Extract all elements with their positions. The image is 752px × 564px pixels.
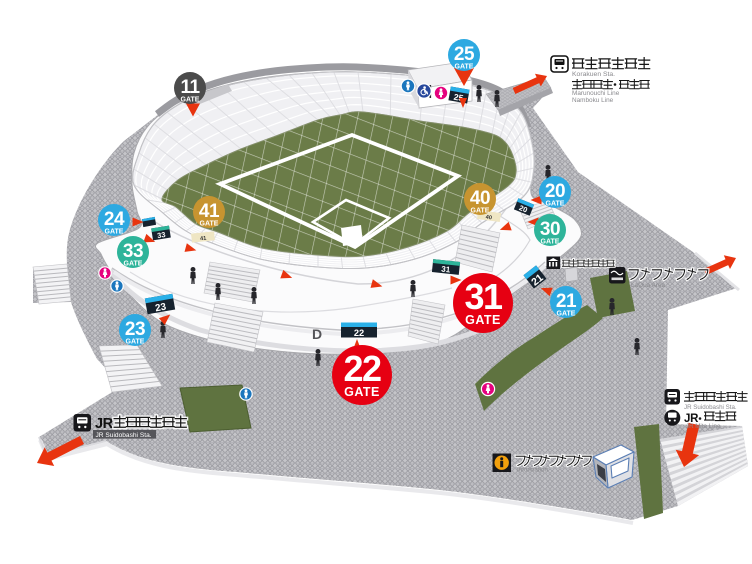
- svg-text:21: 21: [556, 291, 577, 312]
- svg-text:31: 31: [464, 276, 503, 317]
- svg-text:GATE: GATE: [126, 339, 145, 346]
- svg-text:GATE: GATE: [541, 239, 560, 246]
- svg-text:GATE: GATE: [124, 261, 143, 268]
- svg-text:GATE: GATE: [344, 385, 380, 399]
- svg-text:31: 31: [441, 265, 451, 275]
- svg-text:Marunouchi Line: Marunouchi Line: [572, 90, 620, 97]
- svg-text:30: 30: [540, 219, 560, 240]
- svg-text:40: 40: [485, 215, 492, 222]
- svg-text:33: 33: [123, 241, 143, 262]
- svg-text:JR Mita Line: JR Mita Line: [686, 423, 721, 430]
- svg-text:23: 23: [125, 319, 145, 340]
- svg-text:41: 41: [199, 201, 220, 222]
- svg-text:GATE: GATE: [546, 201, 565, 208]
- svg-text:25: 25: [454, 44, 475, 65]
- svg-text:LaQua Area: LaQua Area: [631, 282, 666, 289]
- svg-text:24: 24: [104, 209, 125, 230]
- svg-text:22: 22: [343, 348, 381, 389]
- svg-text:GATE: GATE: [200, 221, 219, 228]
- svg-text:GATE: GATE: [465, 313, 501, 327]
- svg-text:GATE: GATE: [455, 64, 474, 71]
- svg-text:20: 20: [545, 181, 565, 202]
- svg-text:41: 41: [200, 236, 207, 243]
- svg-text:Korakuen Sta.: Korakuen Sta.: [572, 71, 615, 78]
- svg-text:22: 22: [354, 328, 364, 338]
- svg-text:JR: JR: [95, 416, 114, 432]
- svg-text:JR Suidobashi Sta.: JR Suidobashi Sta.: [684, 404, 737, 411]
- svg-text:GATE: GATE: [181, 97, 200, 104]
- svg-text:GATE: GATE: [471, 208, 490, 215]
- svg-text:33: 33: [157, 230, 167, 240]
- svg-text:Information: Information: [517, 467, 549, 474]
- svg-text:GATE: GATE: [557, 311, 576, 318]
- svg-text:D: D: [312, 326, 322, 342]
- svg-text:JR Suidobashi Sta.: JR Suidobashi Sta.: [96, 432, 152, 439]
- svg-text:40: 40: [470, 188, 490, 209]
- svg-text:11: 11: [180, 77, 200, 98]
- svg-text:GATE: GATE: [105, 229, 124, 236]
- svg-text:Namboku Line: Namboku Line: [572, 97, 614, 104]
